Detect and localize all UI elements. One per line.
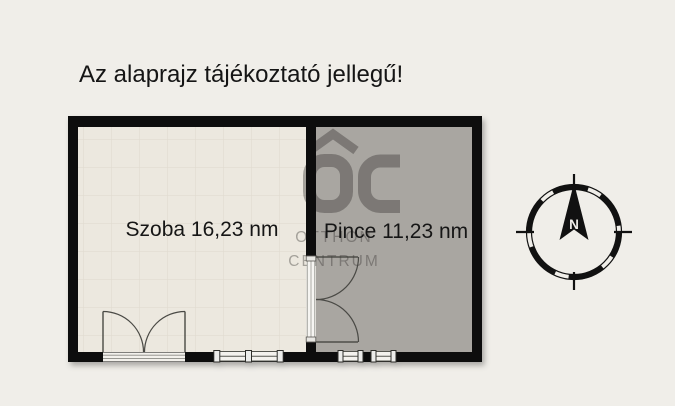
divider-wall-stub (306, 342, 316, 352)
floorplan-image: Az alaprajz tájékoztató jellegű! (0, 0, 675, 401)
szoba-window (214, 351, 283, 363)
pince-room-label: Pince 11,23 nm (324, 220, 468, 243)
watermark-line2: CENTRUM (288, 253, 380, 270)
pince-window-1 (338, 351, 363, 363)
north-label: N (569, 217, 579, 232)
szoba-room-label: Szoba 16,23 nm (126, 218, 279, 241)
floor-plan: OTTHON CENTRUM (68, 116, 482, 362)
disclaimer-title: Az alaprajz tájékoztató jellegű! (79, 61, 403, 90)
compass-icon: N (516, 174, 632, 290)
divider-wall (306, 127, 316, 256)
pince-window-2 (371, 351, 396, 363)
